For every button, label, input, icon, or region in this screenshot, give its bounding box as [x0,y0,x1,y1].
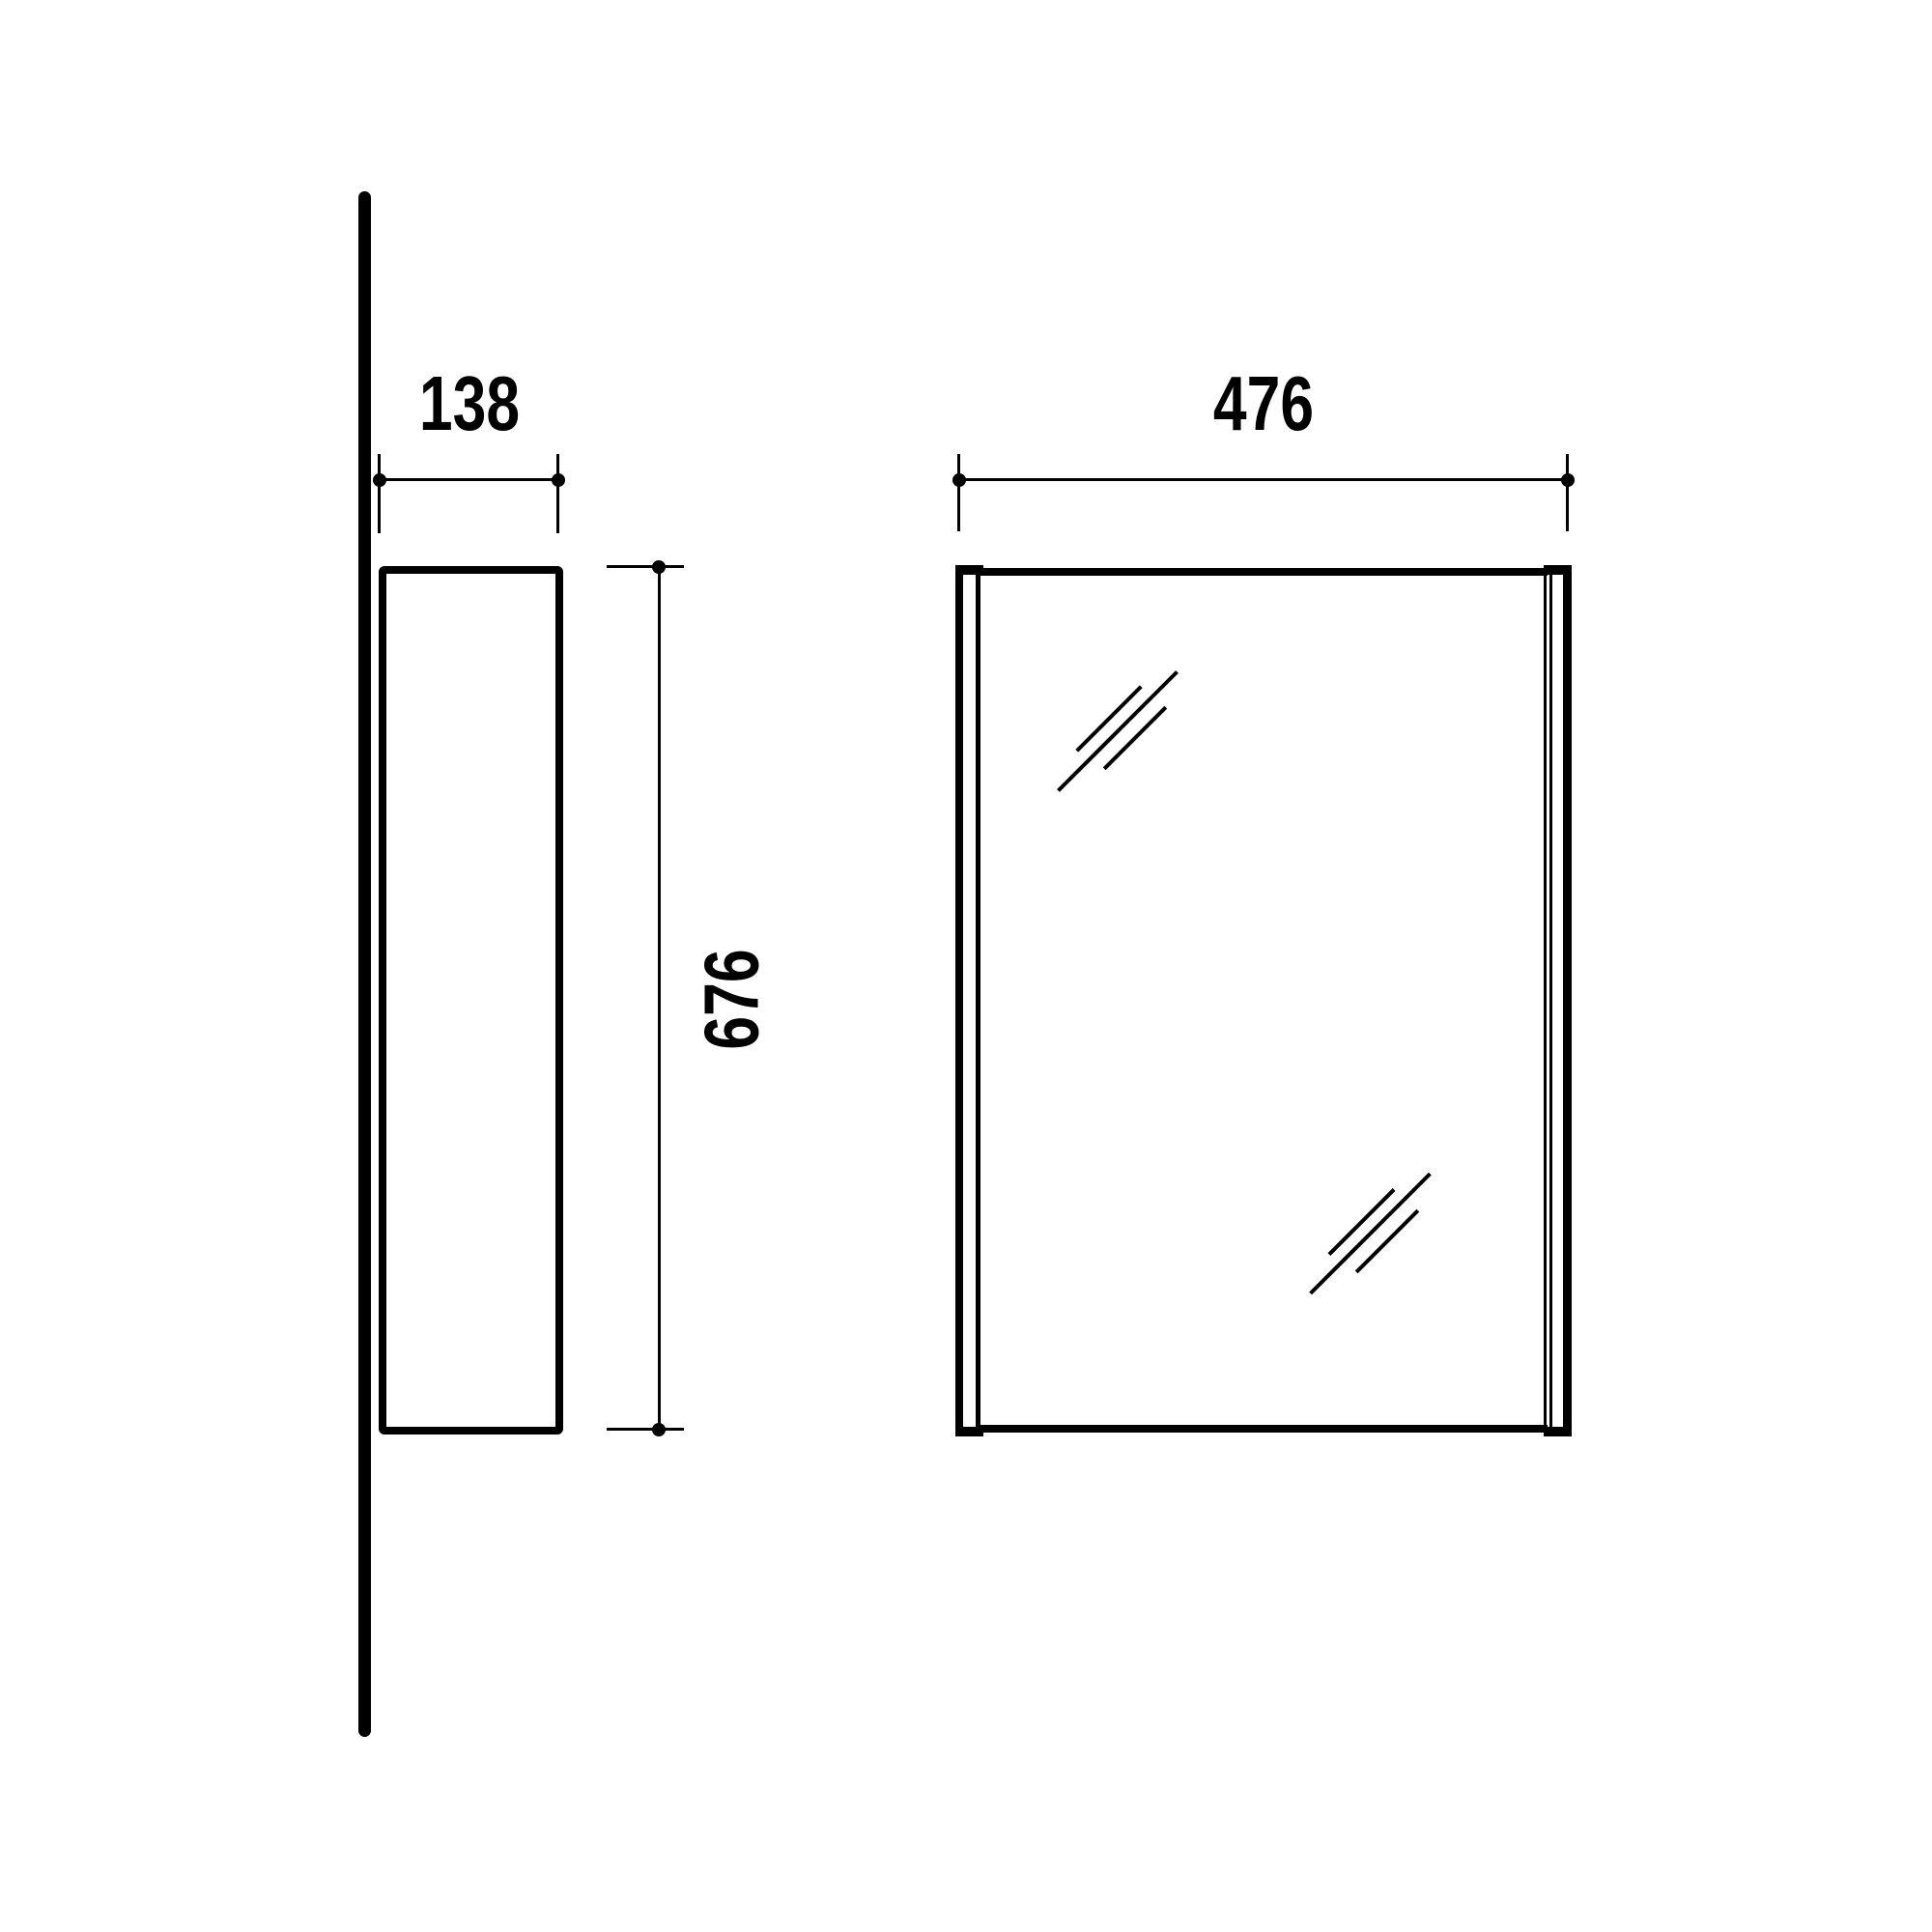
dim-tick-left [957,454,960,531]
dim-endpoint-dot [652,560,666,574]
height-dimension-label: 676 [691,887,773,1113]
depth-dimension-label: 138 [356,362,582,444]
dim-tick-top [607,565,684,568]
left-panel-outer-edge [955,565,963,1436]
side-view-cabinet-outline [379,566,563,1435]
technical-drawing: 138 676 476 [0,0,1932,1932]
dim-endpoint-dot [373,473,386,487]
right-panel-outer-edge [1563,565,1572,1436]
dim-line [380,478,558,481]
right-panel-inner-edge-2 [1549,568,1552,1434]
dim-line [658,567,661,1430]
left-panel-bottom-cap [955,1427,983,1436]
left-panel-top-cap [955,565,983,575]
dim-endpoint-dot [652,1423,666,1436]
dim-tick-left [378,454,381,533]
right-panel-inner-edge [1544,568,1547,1434]
dim-endpoint-dot [952,473,966,487]
dim-endpoint-dot [552,473,565,487]
dim-endpoint-dot [1561,473,1575,487]
width-dimension-label: 476 [1151,362,1377,444]
dim-tick-right [1566,454,1569,531]
mirror-door-bottom-edge [980,1425,1548,1433]
dim-tick-right [556,454,559,533]
right-panel-top-cap [1544,565,1572,575]
hatch-stroke [1309,1173,1432,1295]
dim-tick-bottom [607,1428,684,1431]
mirror-door-top-edge [980,568,1548,576]
right-panel-bottom-cap [1544,1427,1572,1436]
hatch-stroke [1057,670,1179,792]
left-panel-inner-edge [976,568,980,1434]
dim-line [959,478,1568,481]
